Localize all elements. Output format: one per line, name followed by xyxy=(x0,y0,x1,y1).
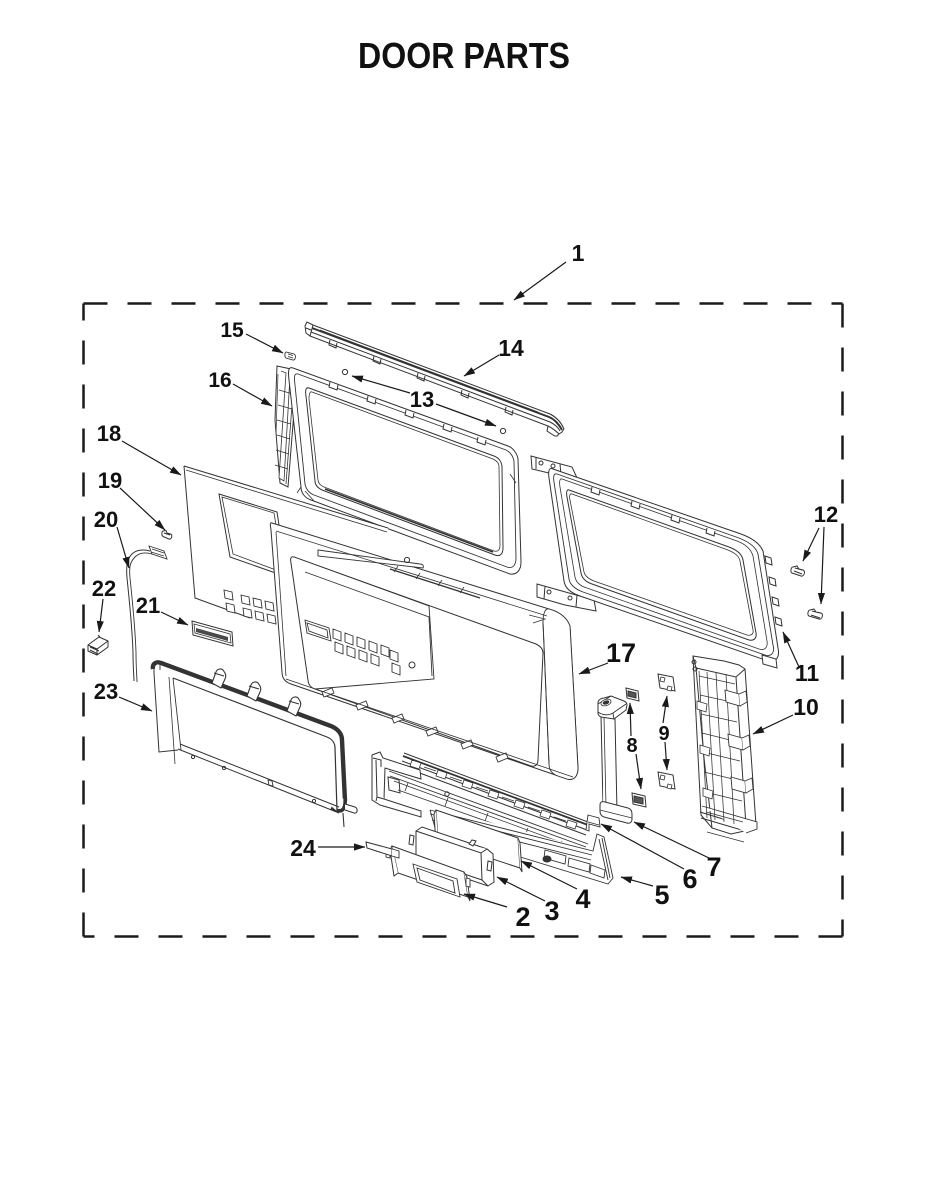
svg-text:DOOR PARTS: DOOR PARTS xyxy=(358,35,570,76)
svg-text:1: 1 xyxy=(572,240,585,266)
svg-text:21: 21 xyxy=(136,593,160,618)
svg-text:19: 19 xyxy=(98,468,122,493)
svg-text:15: 15 xyxy=(220,319,244,342)
svg-text:12: 12 xyxy=(814,502,838,527)
svg-text:7: 7 xyxy=(706,852,721,882)
svg-text:22: 22 xyxy=(92,576,116,601)
svg-text:4: 4 xyxy=(575,884,590,914)
svg-text:20: 20 xyxy=(94,507,118,532)
svg-text:23: 23 xyxy=(94,679,118,704)
svg-text:2: 2 xyxy=(515,902,530,932)
svg-text:24: 24 xyxy=(290,835,316,861)
svg-text:13: 13 xyxy=(410,387,434,412)
svg-text:5: 5 xyxy=(654,880,669,910)
svg-text:14: 14 xyxy=(498,335,524,361)
svg-text:10: 10 xyxy=(793,694,819,720)
svg-text:16: 16 xyxy=(208,369,231,392)
svg-text:3: 3 xyxy=(544,896,559,926)
svg-text:8: 8 xyxy=(626,735,637,757)
svg-text:6: 6 xyxy=(682,864,697,894)
svg-text:9: 9 xyxy=(658,723,669,745)
svg-text:18: 18 xyxy=(97,421,121,446)
svg-text:11: 11 xyxy=(795,660,820,686)
svg-text:17: 17 xyxy=(606,638,636,668)
